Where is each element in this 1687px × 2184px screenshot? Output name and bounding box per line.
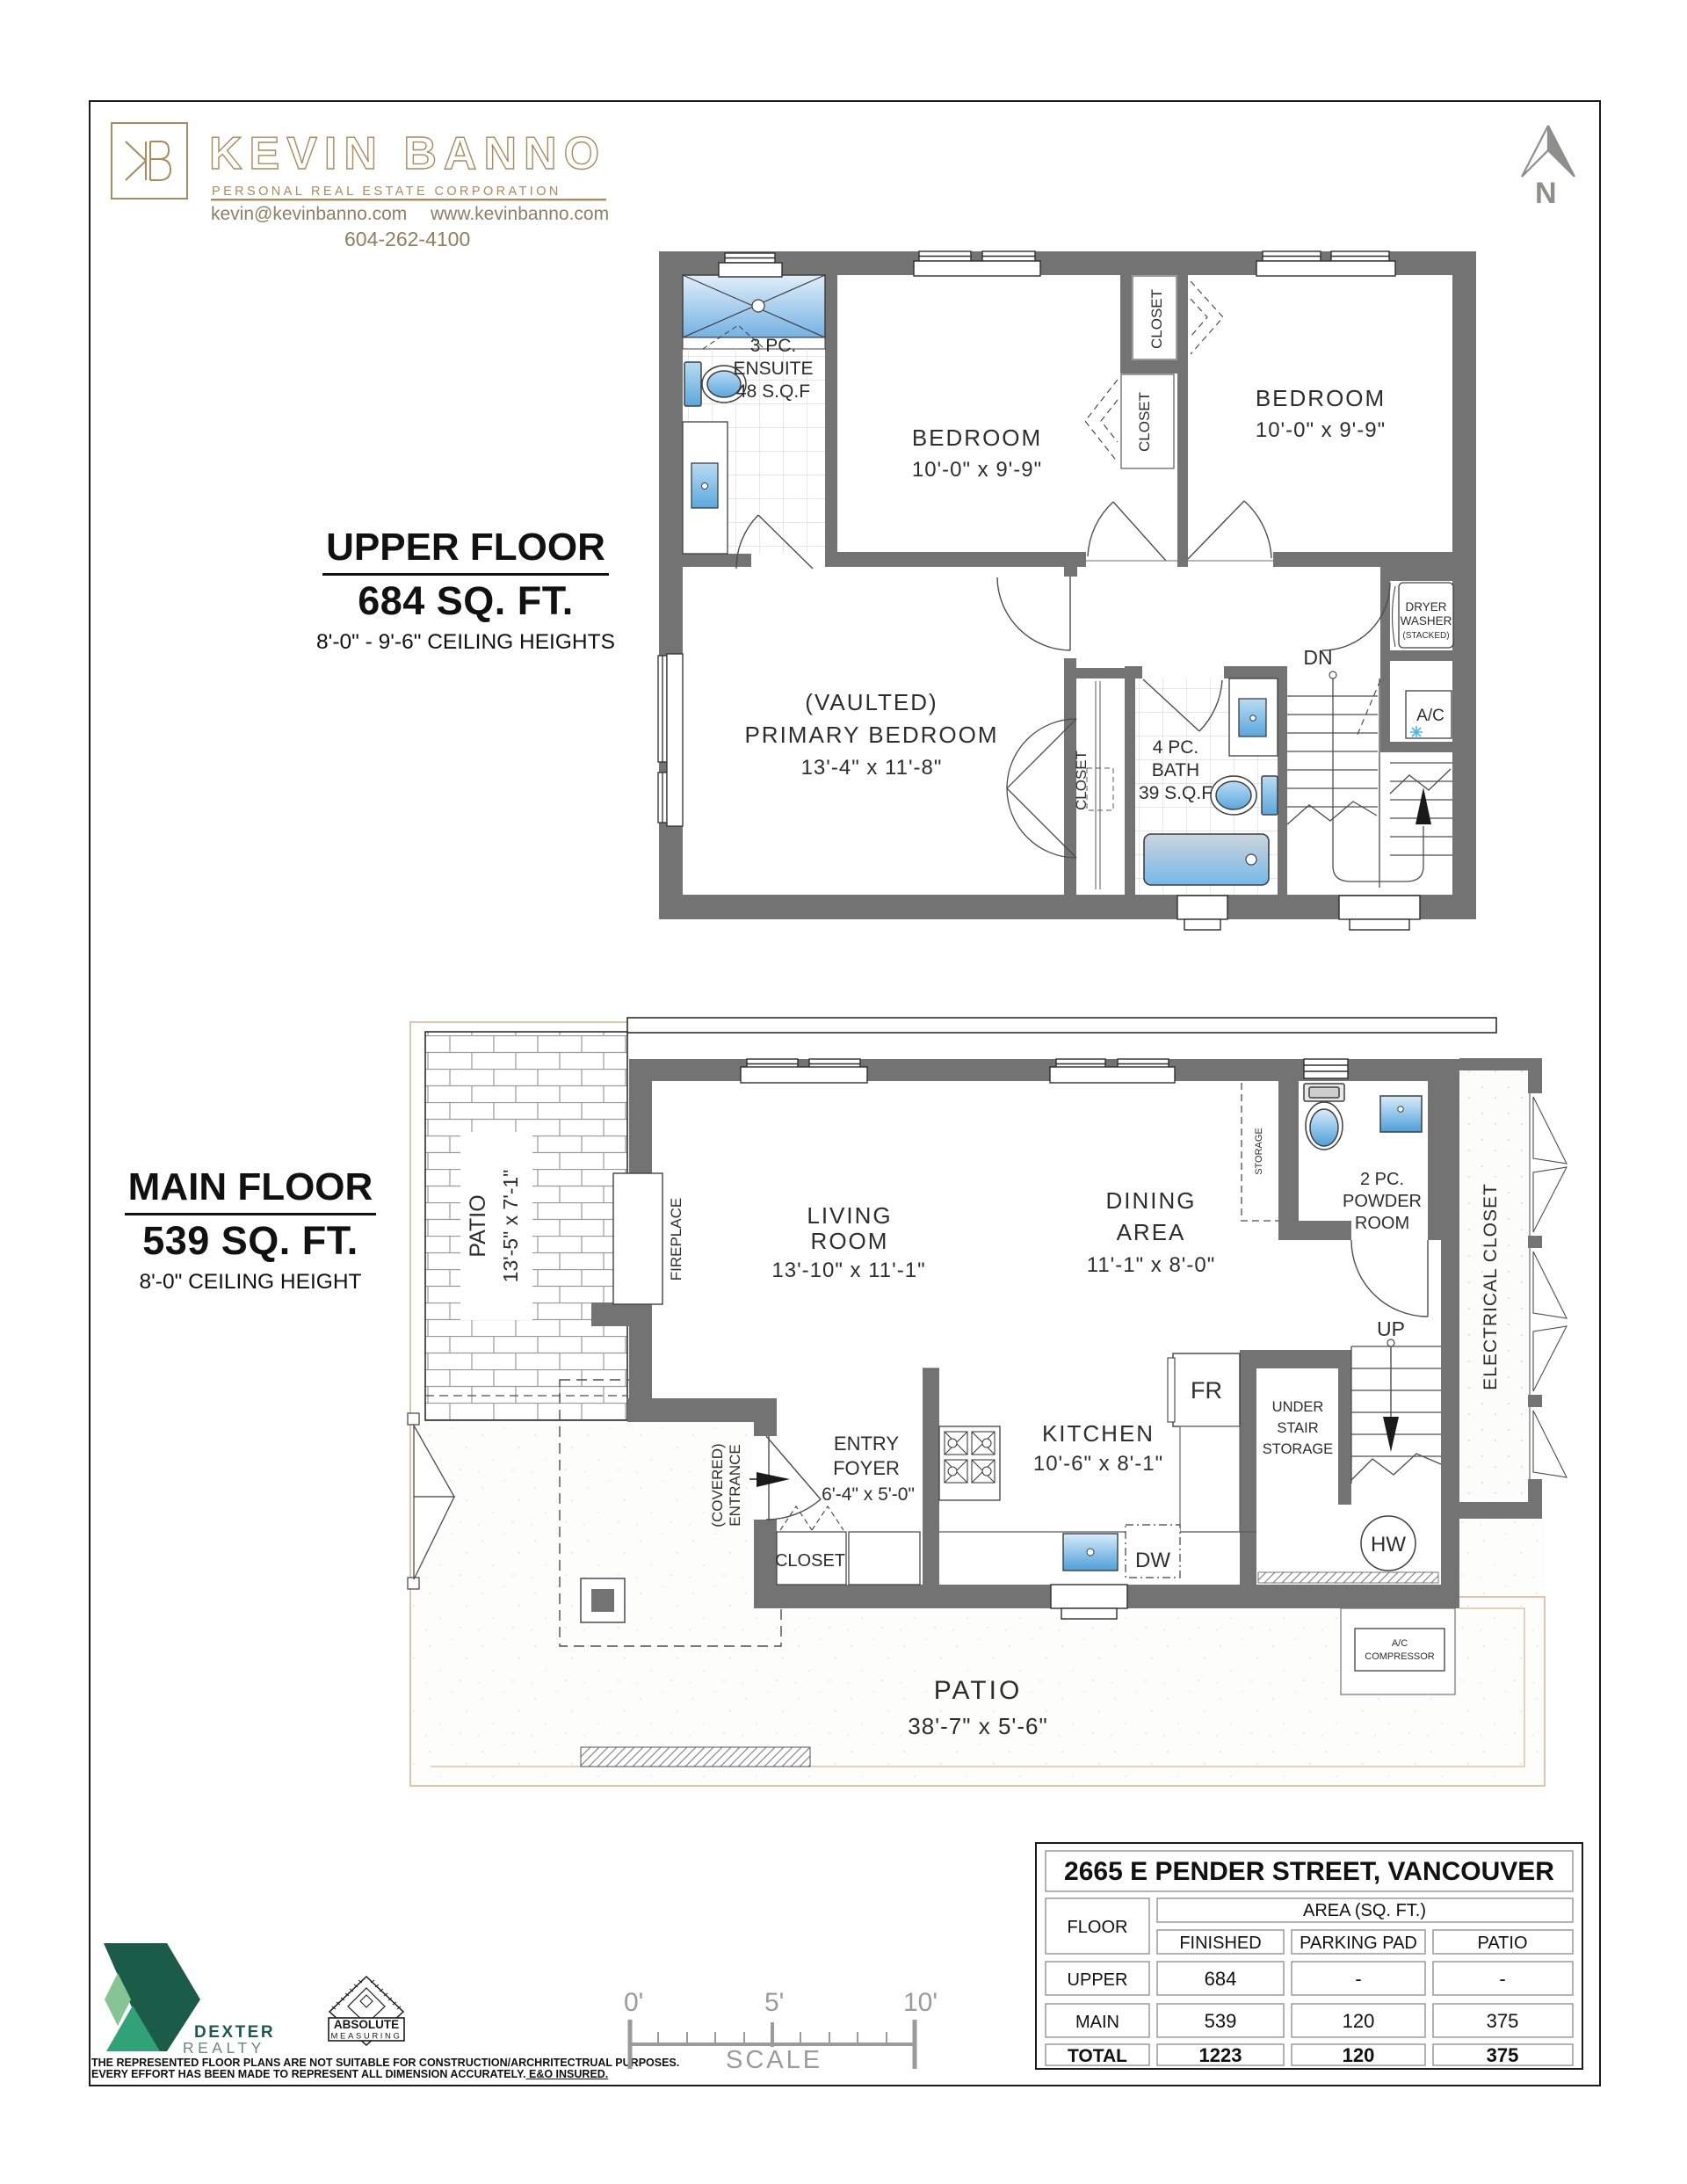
svg-text:MEASURING: MEASURING (331, 2032, 402, 2042)
svg-text:POWDER: POWDER (1343, 1192, 1422, 1211)
svg-text:FOYER: FOYER (833, 1457, 900, 1479)
svg-text:WASHER: WASHER (1401, 614, 1452, 628)
svg-text:38'-7" x 5'-6": 38'-7" x 5'-6" (908, 1713, 1047, 1739)
svg-text:LIVING: LIVING (807, 1202, 892, 1229)
svg-text:6'-4" x 5'-0": 6'-4" x 5'-0" (822, 1484, 915, 1505)
svg-text:KEVIN BANNO: KEVIN BANNO (209, 128, 606, 179)
svg-text:SCALE: SCALE (726, 2046, 822, 2074)
svg-text:10'-0" x 9'-9": 10'-0" x 9'-9" (912, 458, 1042, 482)
svg-text:AREA (SQ. FT.): AREA (SQ. FT.) (1303, 1901, 1426, 1920)
svg-text:48 S.Q.F: 48 S.Q.F (736, 381, 810, 402)
svg-text:CLOSET: CLOSET (1148, 289, 1165, 349)
svg-text:ENSUITE: ENSUITE (733, 359, 813, 379)
svg-text:FLOOR: FLOOR (1068, 1918, 1128, 1937)
svg-text:STAIR: STAIR (1277, 1420, 1318, 1436)
svg-text:13'-5" x 7'-1": 13'-5" x 7'-1" (499, 1170, 522, 1283)
svg-text:604-262-4100: 604-262-4100 (344, 228, 470, 250)
svg-text:BEDROOM: BEDROOM (912, 424, 1042, 451)
svg-text:539: 539 (1205, 2010, 1237, 2032)
svg-text:TOTAL: TOTAL (1068, 2046, 1127, 2066)
svg-text:39 S.Q.F: 39 S.Q.F (1139, 783, 1213, 803)
svg-text:PARKING PAD: PARKING PAD (1300, 1934, 1417, 1953)
svg-text:ENTRANCE: ENTRANCE (727, 1444, 743, 1527)
svg-text:5': 5' (764, 1988, 784, 2017)
svg-text:ROOM: ROOM (1355, 1214, 1409, 1233)
svg-text:UNDER: UNDER (1272, 1399, 1324, 1415)
svg-text:-: - (1355, 1968, 1361, 1990)
svg-text:FIREPLACE: FIREPLACE (668, 1198, 684, 1281)
svg-text:ROOM: ROOM (811, 1228, 889, 1254)
svg-text:PATIO: PATIO (934, 1676, 1023, 1705)
svg-text:0': 0' (624, 1988, 643, 2017)
svg-text:DINING: DINING (1106, 1187, 1197, 1214)
svg-text:HW: HW (1371, 1533, 1406, 1556)
svg-text:2665 E PENDER STREET, VANCOUVE: 2665 E PENDER STREET, VANCOUVER (1064, 1857, 1554, 1886)
svg-text:UP: UP (1377, 1317, 1405, 1340)
svg-text:1223: 1223 (1199, 2044, 1242, 2066)
svg-text:DW: DW (1135, 1549, 1170, 1572)
svg-text:3 PC.: 3 PC. (750, 336, 797, 356)
svg-text:STORAGE: STORAGE (1254, 1128, 1264, 1175)
svg-text:10': 10' (903, 1988, 938, 2017)
svg-text:MAIN: MAIN (1075, 2013, 1119, 2032)
svg-text:DRYER: DRYER (1405, 600, 1446, 613)
svg-text:ENTRY: ENTRY (834, 1433, 899, 1455)
svg-text:STORAGE: STORAGE (1263, 1441, 1333, 1457)
svg-text:(VAULTED): (VAULTED) (805, 689, 938, 715)
svg-text:REALTY: REALTY (183, 2039, 265, 2057)
svg-text:PERSONAL REAL ESTATE CORPORATI: PERSONAL REAL ESTATE CORPORATION (212, 185, 561, 199)
svg-text:FR: FR (1191, 1377, 1222, 1404)
svg-text:BEDROOM: BEDROOM (1256, 385, 1386, 411)
svg-text:2 PC.: 2 PC. (1360, 1170, 1404, 1189)
svg-text:-: - (1499, 1968, 1505, 1990)
svg-text:PRIMARY BEDROOM: PRIMARY BEDROOM (744, 722, 998, 748)
svg-text:11'-1" x 8'-0": 11'-1" x 8'-0" (1087, 1253, 1215, 1277)
svg-text:COMPRESSOR: COMPRESSOR (1365, 1651, 1435, 1662)
svg-text:(COVERED): (COVERED) (709, 1443, 726, 1527)
svg-text:375: 375 (1487, 2010, 1519, 2032)
svg-text:kevin@kevinbanno.com: kevin@kevinbanno.com (211, 204, 407, 224)
svg-text:ABSOLUTE: ABSOLUTE (334, 2018, 399, 2031)
svg-text:13'-4" x 11'-8": 13'-4" x 11'-8" (801, 756, 943, 780)
svg-text:4 PC.: 4 PC. (1153, 737, 1199, 758)
svg-text:KITCHEN: KITCHEN (1042, 1420, 1155, 1447)
svg-text:120: 120 (1343, 2010, 1375, 2032)
svg-text:CLOSET: CLOSET (1136, 392, 1153, 452)
svg-text:www.kevinbanno.com: www.kevinbanno.com (430, 204, 609, 224)
svg-text:375: 375 (1487, 2044, 1519, 2066)
svg-text:DN: DN (1303, 646, 1332, 669)
svg-text:ELECTRICAL CLOSET: ELECTRICAL CLOSET (1481, 1183, 1501, 1390)
svg-text:A/C: A/C (1416, 707, 1444, 725)
svg-text:13'-10" x 11'-1": 13'-10" x 11'-1" (771, 1259, 925, 1282)
svg-text:A/C: A/C (1392, 1638, 1408, 1649)
svg-text:120: 120 (1343, 2044, 1375, 2066)
svg-text:PATIO: PATIO (466, 1194, 490, 1257)
svg-text:CLOSET: CLOSET (1073, 751, 1090, 810)
svg-text:PATIO: PATIO (1477, 1934, 1527, 1953)
svg-text:BATH: BATH (1152, 760, 1199, 780)
svg-text:10'-6" x 8'-1": 10'-6" x 8'-1" (1033, 1452, 1163, 1476)
svg-text:UPPER: UPPER (1068, 1970, 1128, 1990)
svg-text:10'-0" x 9'-9": 10'-0" x 9'-9" (1256, 418, 1386, 442)
svg-text:684: 684 (1205, 1968, 1237, 1990)
svg-text:N: N (1535, 177, 1557, 210)
svg-text:AREA: AREA (1117, 1219, 1186, 1245)
svg-text:CLOSET: CLOSET (775, 1551, 845, 1571)
svg-text:(STACKED): (STACKED) (1402, 631, 1449, 641)
svg-text:FINISHED: FINISHED (1179, 1934, 1261, 1953)
